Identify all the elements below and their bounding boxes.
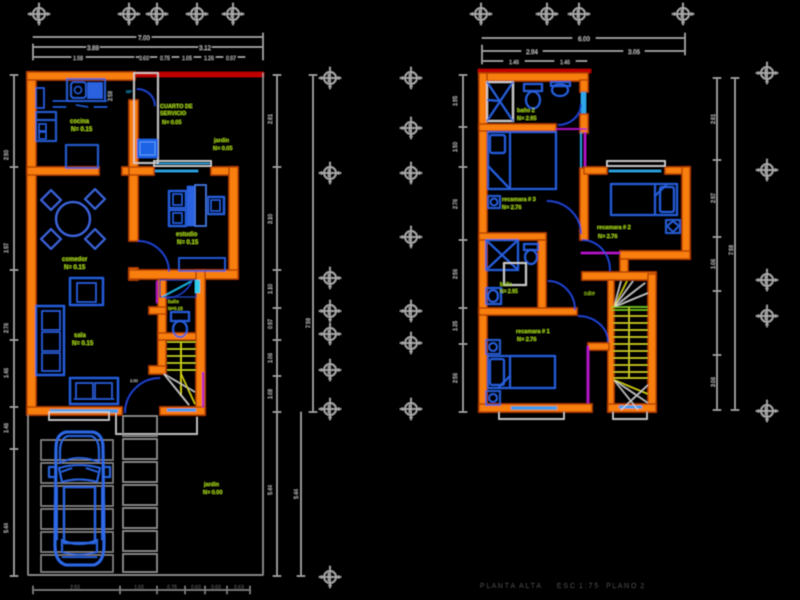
svg-text:1.97: 1.97 (4, 243, 10, 253)
svg-text:0.75: 0.75 (160, 56, 170, 62)
svg-text:N= 2.76: N= 2.76 (517, 337, 536, 343)
svg-text:3.12: 3.12 (199, 46, 211, 52)
svg-text:1.95: 1.95 (453, 96, 459, 106)
svg-text:7.98: 7.98 (729, 245, 735, 255)
svg-text:jardin: jardin (203, 482, 220, 488)
svg-text:2.76: 2.76 (453, 199, 459, 209)
svg-text:N= 0.00: N= 0.00 (203, 490, 222, 496)
svg-text:3.06: 3.06 (711, 377, 717, 387)
svg-text:N=0.15: N=0.15 (168, 306, 183, 311)
svg-text:N= 2.95: N= 2.95 (517, 116, 536, 122)
svg-text:2.81: 2.81 (711, 114, 717, 124)
svg-text:baño: baño (168, 299, 179, 304)
svg-text:N= 0.15: N= 0.15 (64, 265, 86, 271)
svg-text:CUARTO DE: CUARTO DE (160, 104, 193, 110)
svg-text:1.46: 1.46 (560, 60, 570, 66)
svg-text:2.56: 2.56 (453, 373, 459, 383)
svg-text:5.44: 5.44 (4, 523, 10, 533)
svg-text:baño: baño (500, 282, 512, 288)
svg-text:estudio: estudio (176, 232, 198, 238)
svg-text:0.63: 0.63 (234, 585, 244, 591)
svg-text:0.60: 0.60 (191, 585, 201, 591)
svg-text:2.56: 2.56 (453, 269, 459, 279)
svg-text:1.26: 1.26 (204, 56, 214, 62)
svg-text:2.81: 2.81 (268, 114, 274, 124)
svg-text:P L A N T A A L T A E: P L A N T A A L T A E S C 1 : 7 5 P L A … (480, 583, 644, 590)
svg-text:1.46: 1.46 (4, 423, 10, 433)
svg-text:N= 0.05: N= 0.05 (213, 146, 232, 152)
svg-text:3.06: 3.06 (628, 50, 640, 56)
svg-text:1.00: 1.00 (134, 585, 144, 591)
svg-text:1.05: 1.05 (182, 56, 192, 62)
svg-text:2.76: 2.76 (4, 323, 10, 333)
svg-text:2.94: 2.94 (526, 50, 538, 56)
svg-text:baño 2: baño 2 (517, 108, 535, 114)
svg-text:0.60: 0.60 (139, 56, 149, 62)
svg-text:N= 2.76: N= 2.76 (598, 234, 617, 240)
svg-text:5.44: 5.44 (294, 489, 300, 499)
svg-text:sala: sala (74, 333, 86, 339)
svg-text:N= 2.76: N= 2.76 (502, 205, 521, 211)
svg-text:N= 2.95: N= 2.95 (500, 289, 518, 295)
svg-text:3.10: 3.10 (268, 214, 274, 224)
svg-text:1.00: 1.00 (130, 378, 139, 383)
svg-text:recamara # 1: recamara # 1 (516, 329, 550, 335)
svg-text:1.98: 1.98 (73, 56, 83, 62)
svg-text:recamara # 3: recamara # 3 (502, 197, 536, 203)
svg-text:1.06: 1.06 (711, 259, 717, 269)
svg-text:recamara # 2: recamara # 2 (597, 225, 631, 231)
svg-text:2.90: 2.90 (4, 150, 10, 160)
svg-text:1.08: 1.08 (268, 389, 274, 399)
svg-text:1.06: 1.06 (268, 353, 274, 363)
svg-text:3.88: 3.88 (87, 46, 99, 52)
svg-text:cocina: cocina (70, 119, 90, 125)
svg-text:jardin: jardin (213, 138, 230, 144)
svg-text:1.46: 1.46 (509, 60, 519, 66)
svg-text:MP: MP (126, 89, 132, 94)
svg-text:6.00: 6.00 (578, 37, 590, 43)
svg-text:2.97: 2.97 (711, 193, 717, 203)
svg-text:5.44: 5.44 (268, 485, 274, 495)
svg-text:1.46: 1.46 (4, 368, 10, 378)
svg-text:N= 0.15: N= 0.15 (177, 240, 199, 246)
svg-text:0.97: 0.97 (268, 319, 274, 329)
svg-text:comedor: comedor (62, 257, 88, 263)
svg-text:2.58: 2.58 (108, 91, 114, 101)
svg-text:1.50: 1.50 (453, 142, 459, 152)
svg-text:SERVICIO: SERVICIO (160, 111, 187, 117)
svg-text:2.50: 2.50 (70, 585, 80, 591)
svg-text:1.10: 1.10 (268, 284, 274, 294)
svg-text:7.98: 7.98 (306, 318, 312, 328)
svg-text:sube: sube (584, 291, 595, 297)
svg-text:0.60: 0.60 (211, 585, 221, 591)
svg-text:0.75: 0.75 (167, 585, 177, 591)
svg-text:7.00: 7.00 (138, 36, 150, 42)
svg-text:1.35: 1.35 (453, 321, 459, 331)
svg-text:N= 0.15: N= 0.15 (72, 341, 94, 347)
svg-text:N= 0.05: N= 0.05 (162, 120, 181, 126)
svg-text:0.97: 0.97 (226, 56, 236, 62)
svg-text:N= 0.15: N= 0.15 (71, 127, 93, 133)
